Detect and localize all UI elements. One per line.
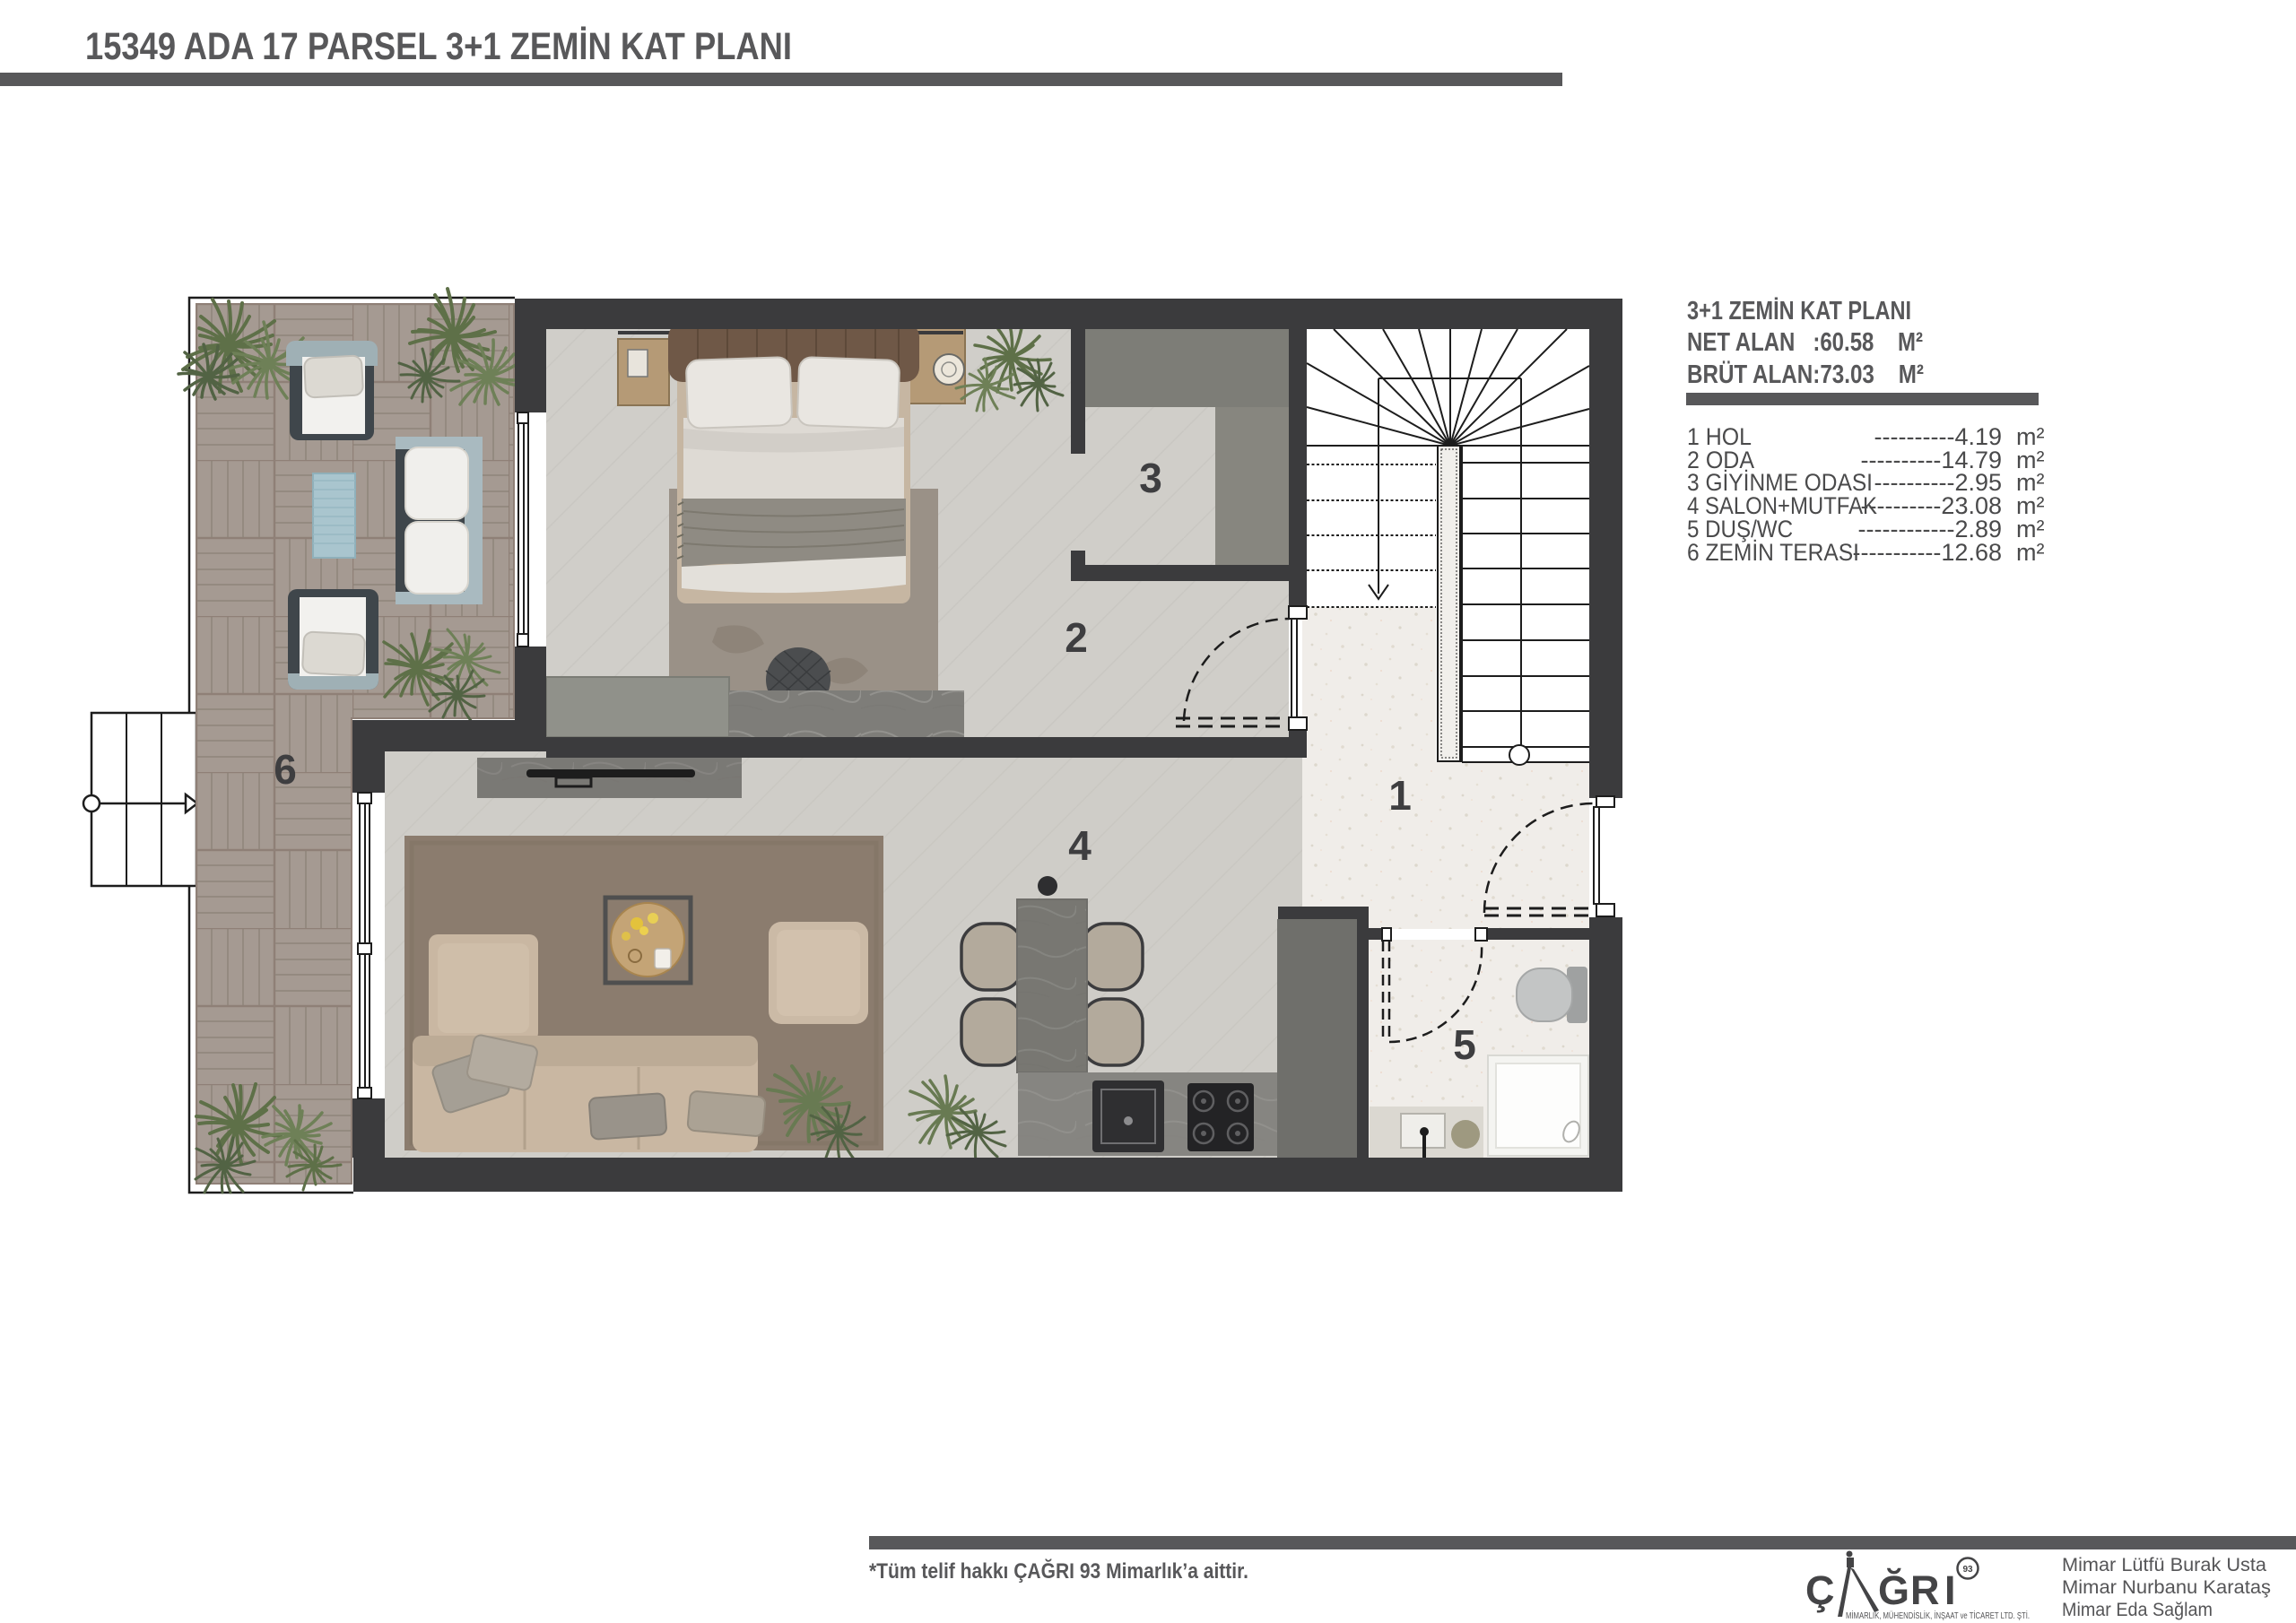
svg-text:3+1 ZEMİN KAT PLANI: 3+1 ZEMİN KAT PLANI bbox=[1687, 297, 1911, 325]
svg-text:I: I bbox=[1944, 1567, 1956, 1613]
svg-text:MİMARLIK, MÜHENDİSLİK, İNŞAAT: MİMARLIK, MÜHENDİSLİK, İNŞAAT ve TİCARET… bbox=[1846, 1610, 2030, 1621]
svg-text:6 ZEMİN TERASI: 6 ZEMİN TERASI bbox=[1687, 538, 1859, 566]
svg-text:93: 93 bbox=[1962, 1565, 1973, 1575]
svg-text:6: 6 bbox=[274, 746, 297, 793]
svg-text:m²: m² bbox=[2016, 539, 2044, 566]
svg-text:Ğ: Ğ bbox=[1878, 1567, 1909, 1613]
svg-text:1: 1 bbox=[1388, 772, 1412, 819]
svg-text:Mimar Nurbanu Karataş: Mimar Nurbanu Karataş bbox=[2062, 1577, 2271, 1598]
svg-text:NET ALAN :60.58 M²: NET ALAN :60.58 M² bbox=[1687, 328, 1923, 357]
svg-text:-----------12.68: -----------12.68 bbox=[1853, 539, 2002, 566]
svg-text:*Tüm telif hakkı ÇAĞRI 93 Mima: *Tüm telif hakkı ÇAĞRI 93 Mimarlık’a ait… bbox=[869, 1558, 1248, 1584]
svg-text:3: 3 bbox=[1139, 455, 1162, 501]
svg-text:Mimar Lütfü Burak Usta: Mimar Lütfü Burak Usta bbox=[2062, 1555, 2266, 1575]
svg-text:5: 5 bbox=[1453, 1021, 1476, 1068]
svg-text:BRÜT ALAN:73.03 M²: BRÜT ALAN:73.03 M² bbox=[1687, 360, 1924, 389]
svg-text:Mimar Eda Sağlam: Mimar Eda Sağlam bbox=[2062, 1600, 2213, 1620]
svg-text:2: 2 bbox=[1065, 614, 1088, 661]
svg-text:4: 4 bbox=[1068, 822, 1091, 869]
svg-text:R: R bbox=[1910, 1567, 1940, 1613]
svg-text:15349 ADA 17 PARSEL 3+1 ZEMİN: 15349 ADA 17 PARSEL 3+1 ZEMİN KAT PLANI bbox=[85, 25, 792, 68]
svg-text:Ç: Ç bbox=[1805, 1567, 1835, 1613]
